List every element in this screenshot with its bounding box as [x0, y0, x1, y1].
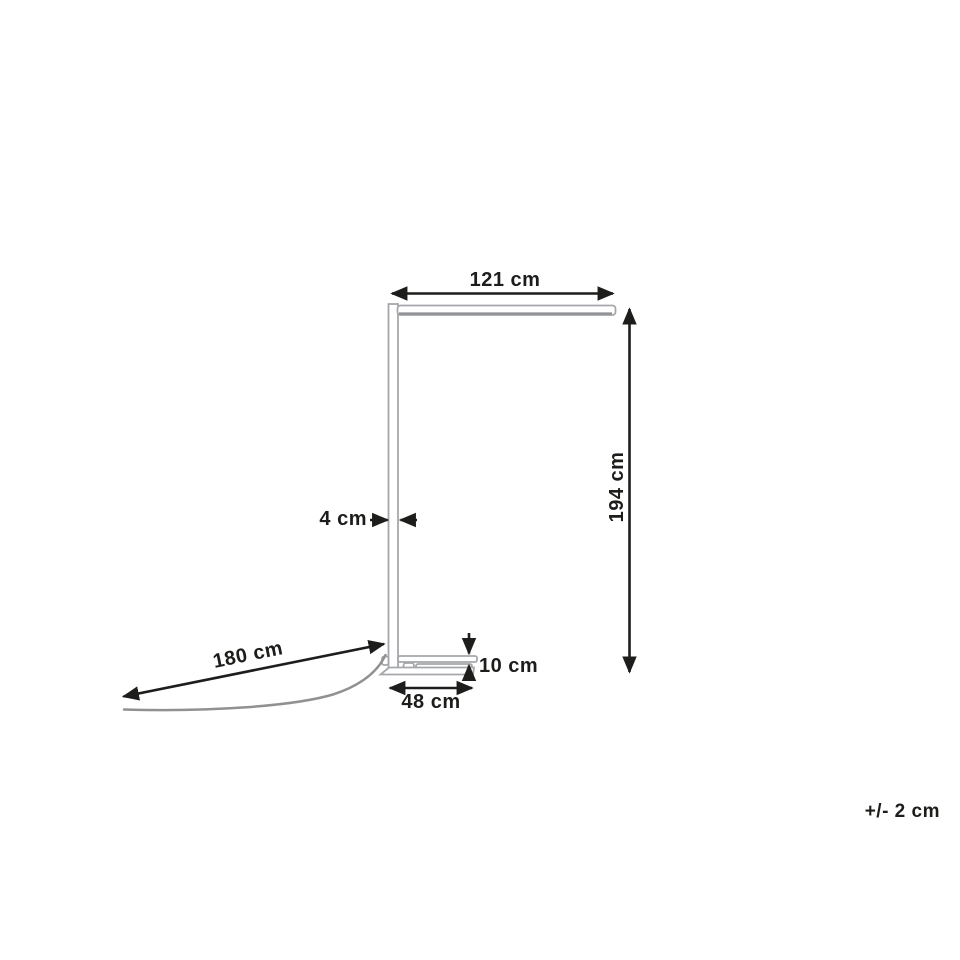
lamp-line-drawing: [0, 0, 960, 960]
dim-label-base-height: 10 cm: [479, 656, 549, 676]
tolerance-note: +/- 2 cm: [820, 802, 940, 821]
dim-label-base-depth: 48 cm: [381, 692, 481, 712]
dim-label-total-height: 194 cm: [607, 452, 627, 523]
lamp-pole: [389, 304, 399, 668]
lamp-foot-bar: [398, 656, 477, 662]
dim-label-arm-width: 121 cm: [455, 270, 555, 290]
dim-label-pole-depth: 4 cm: [307, 509, 367, 529]
lamp-base-plate: [381, 668, 475, 675]
diagram-canvas: 121 cm 194 cm 4 cm 10 cm 48 cm 180 cm +/…: [0, 0, 960, 960]
